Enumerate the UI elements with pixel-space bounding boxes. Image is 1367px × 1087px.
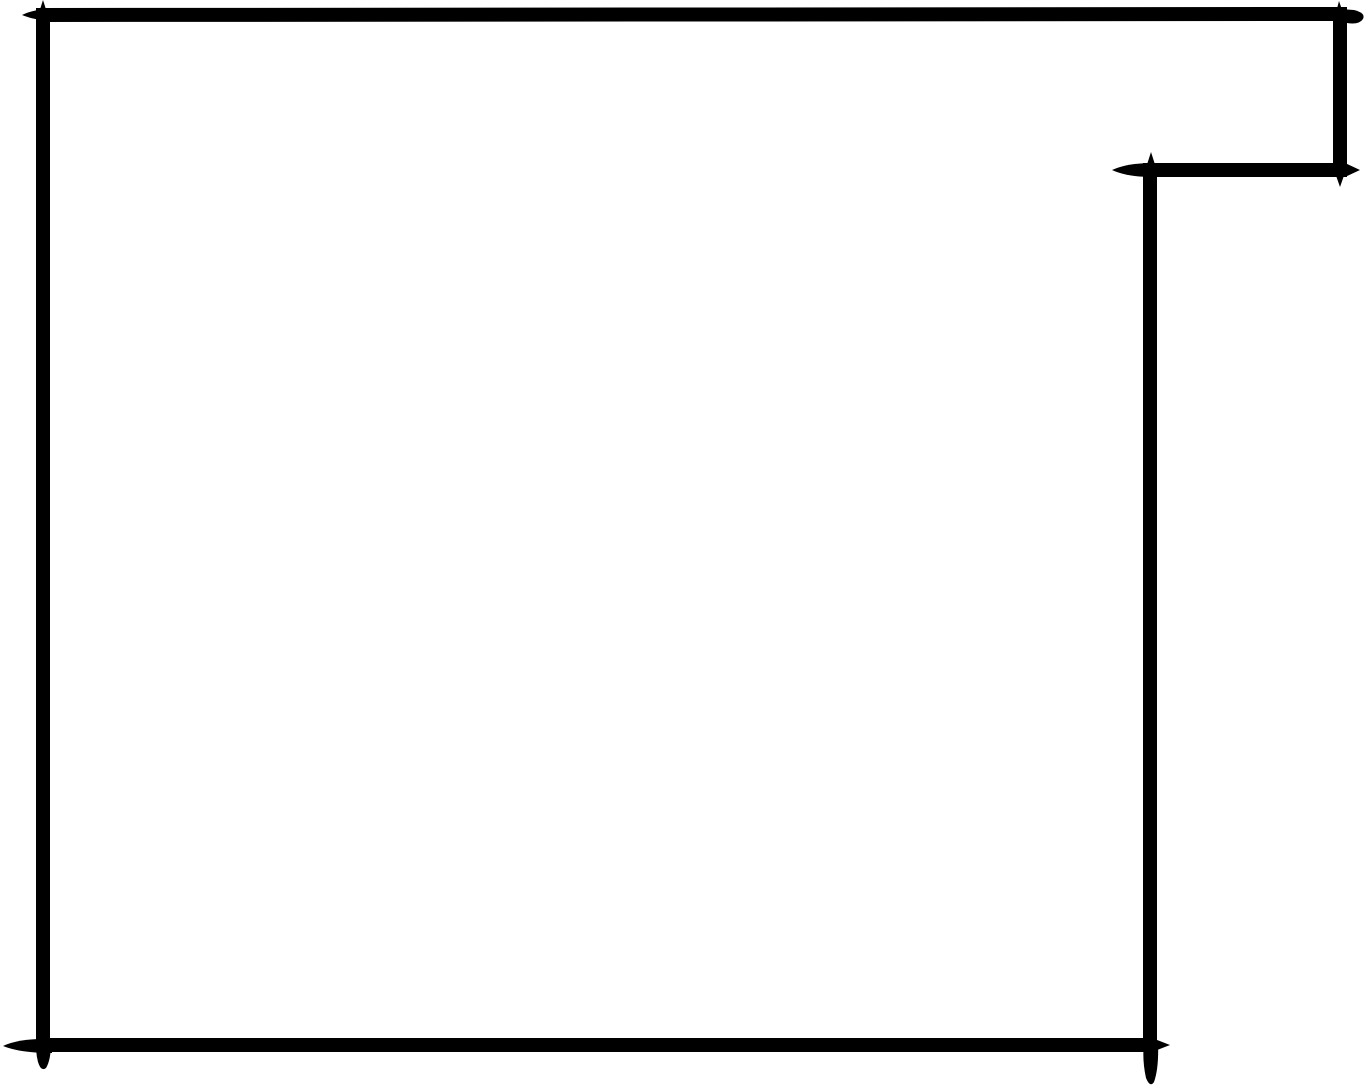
- spur-top-left-flick: [22, 9, 52, 21]
- spur-top-right-bump: [1340, 9, 1364, 24]
- notched-rectangle-sketch: [0, 0, 1367, 1087]
- spur-notch-right-flick: [1345, 163, 1360, 177]
- spur-bottom-left-tail: [36, 1042, 51, 1069]
- spur-notch-inner-flick: [1112, 163, 1152, 177]
- drawing-canvas: [0, 0, 1367, 1087]
- spur-bottom-right-tail: [1143, 1042, 1158, 1084]
